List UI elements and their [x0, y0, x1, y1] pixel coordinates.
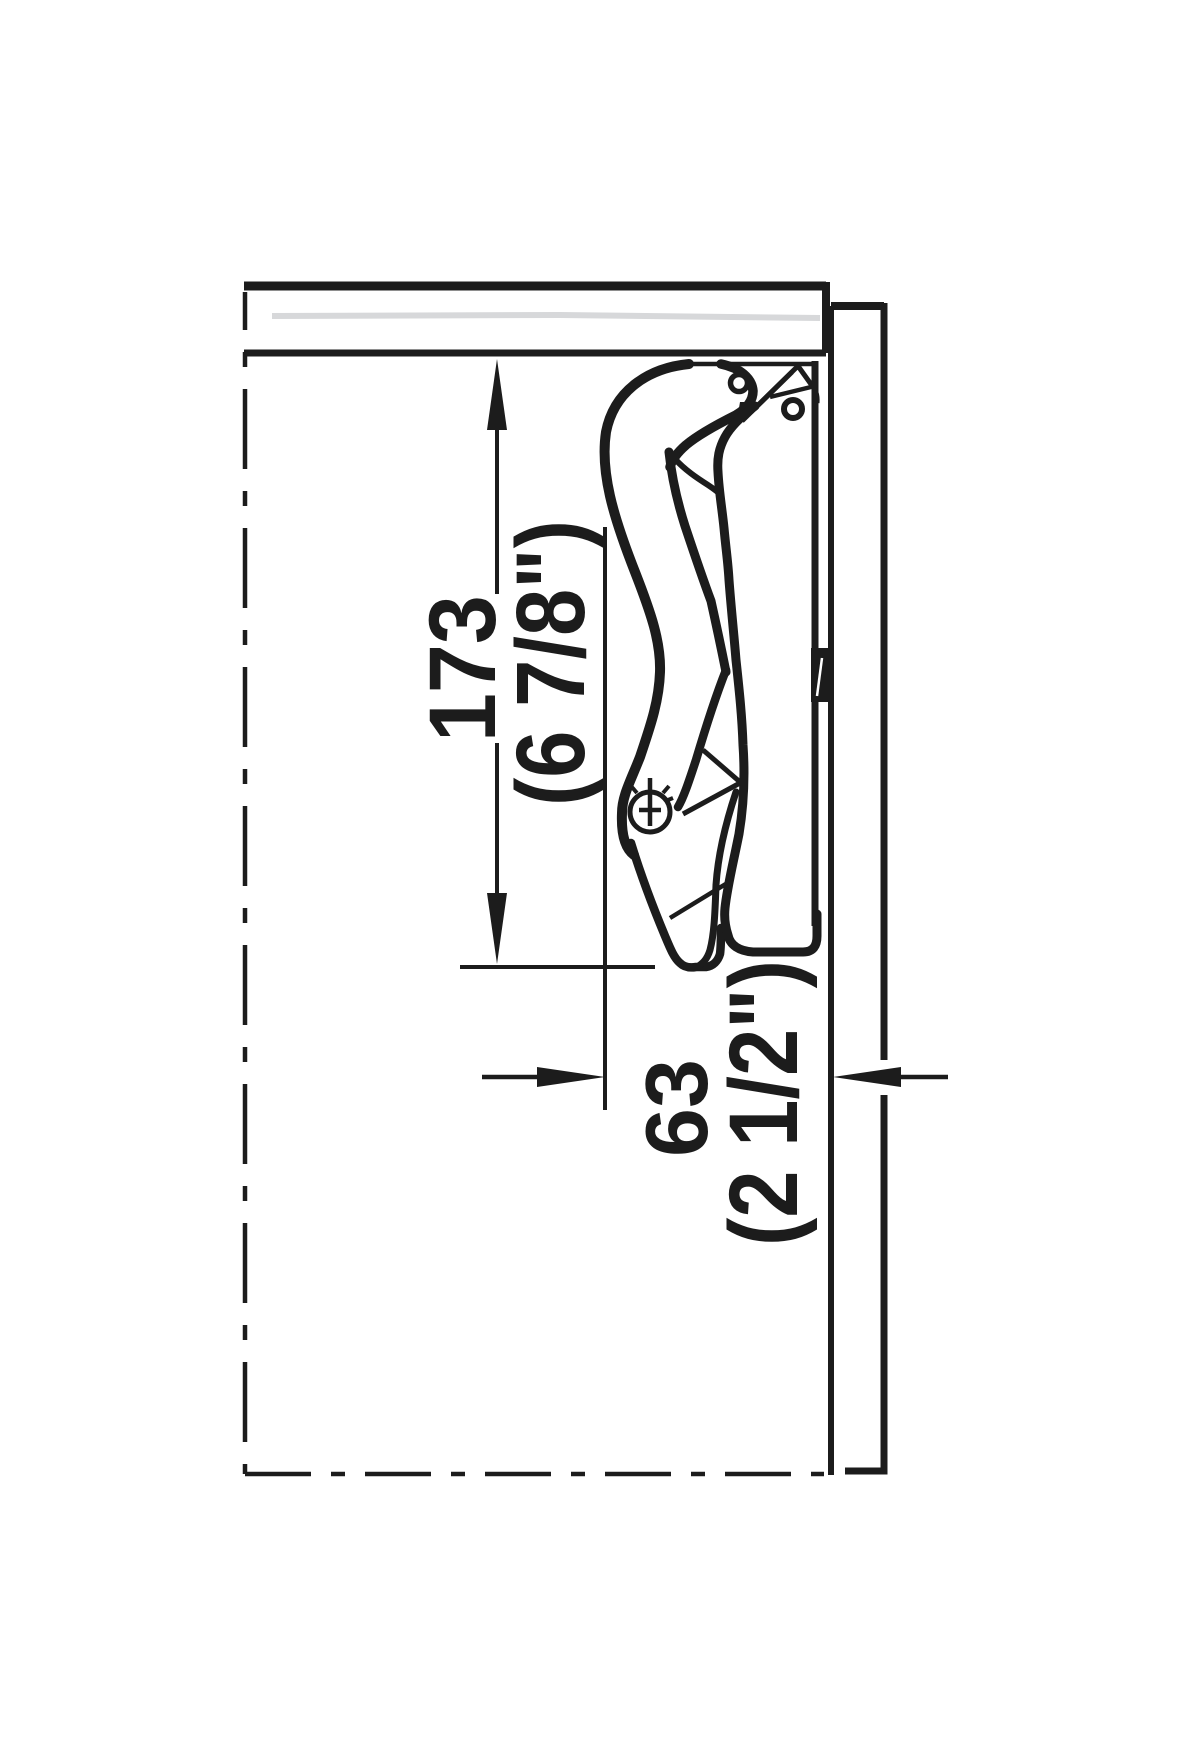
svg-text:(2 1/2"): (2 1/2") — [709, 960, 818, 1246]
svg-text:(6 7/8"): (6 7/8") — [496, 520, 605, 806]
